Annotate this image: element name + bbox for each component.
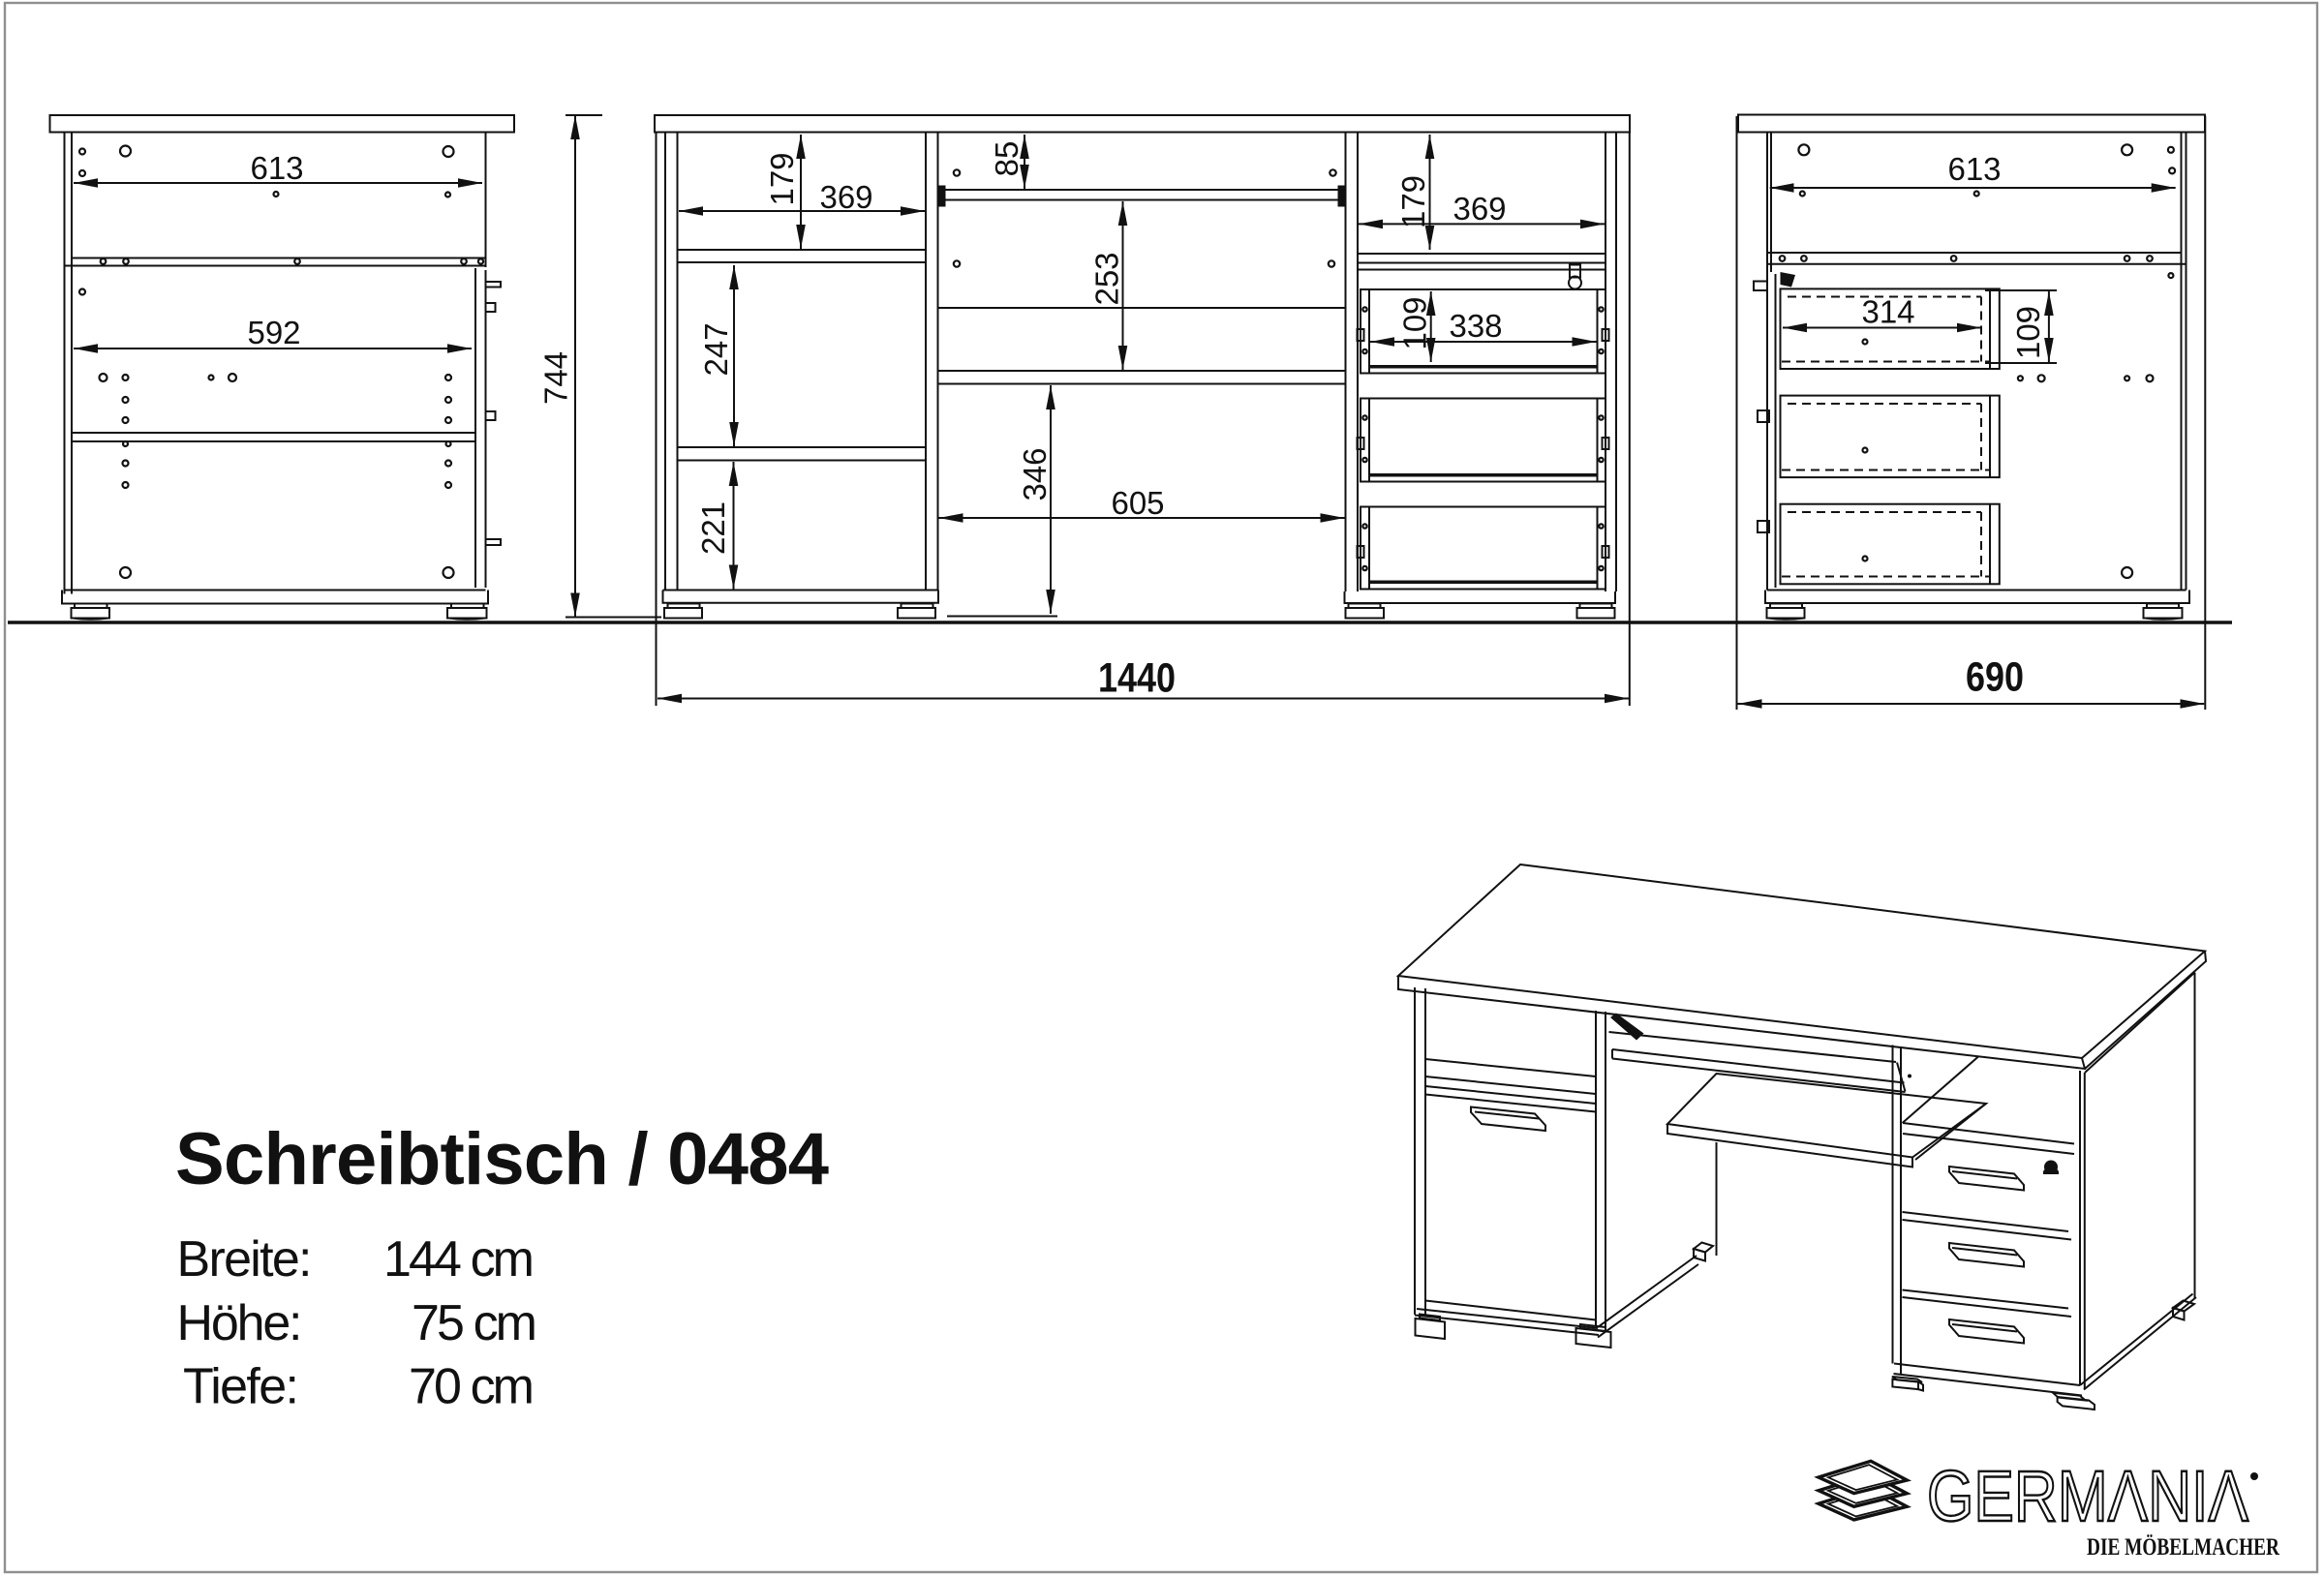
svg-text:Breite:: Breite:: [177, 1231, 313, 1288]
svg-text:1440: 1440: [1098, 655, 1176, 702]
svg-text:GERMΛNIΛ: GERMΛNIΛ: [1927, 1456, 2248, 1536]
svg-text:Tiefe:: Tiefe:: [183, 1359, 299, 1415]
svg-text:338: 338: [1449, 308, 1502, 344]
svg-text:85: 85: [989, 141, 1024, 177]
svg-text:613: 613: [250, 150, 303, 186]
svg-text:70 cm: 70 cm: [409, 1359, 535, 1415]
svg-text:179: 179: [1395, 175, 1431, 228]
svg-text:613: 613: [1947, 151, 2001, 187]
svg-text:Höhe:: Höhe:: [177, 1295, 303, 1351]
svg-text:369: 369: [819, 179, 872, 215]
svg-text:75 cm: 75 cm: [412, 1295, 537, 1351]
svg-text:109: 109: [2010, 306, 2046, 359]
svg-text:DIE MÖBELMACHER: DIE MÖBELMACHER: [2087, 1534, 2280, 1561]
svg-text:221: 221: [695, 501, 731, 555]
svg-text:690: 690: [1966, 654, 2024, 701]
svg-text:369: 369: [1452, 191, 1506, 227]
svg-text:253: 253: [1089, 252, 1125, 305]
svg-text:605: 605: [1111, 485, 1164, 521]
svg-text:144 cm: 144 cm: [383, 1231, 535, 1288]
svg-text:247: 247: [698, 322, 734, 376]
svg-text:346: 346: [1017, 447, 1053, 500]
svg-text:592: 592: [247, 315, 300, 350]
svg-text:314: 314: [1861, 294, 1914, 330]
svg-text:179: 179: [764, 152, 800, 205]
svg-text:Schreibtisch / 0484: Schreibtisch / 0484: [175, 1118, 829, 1200]
svg-text:744: 744: [538, 351, 574, 405]
